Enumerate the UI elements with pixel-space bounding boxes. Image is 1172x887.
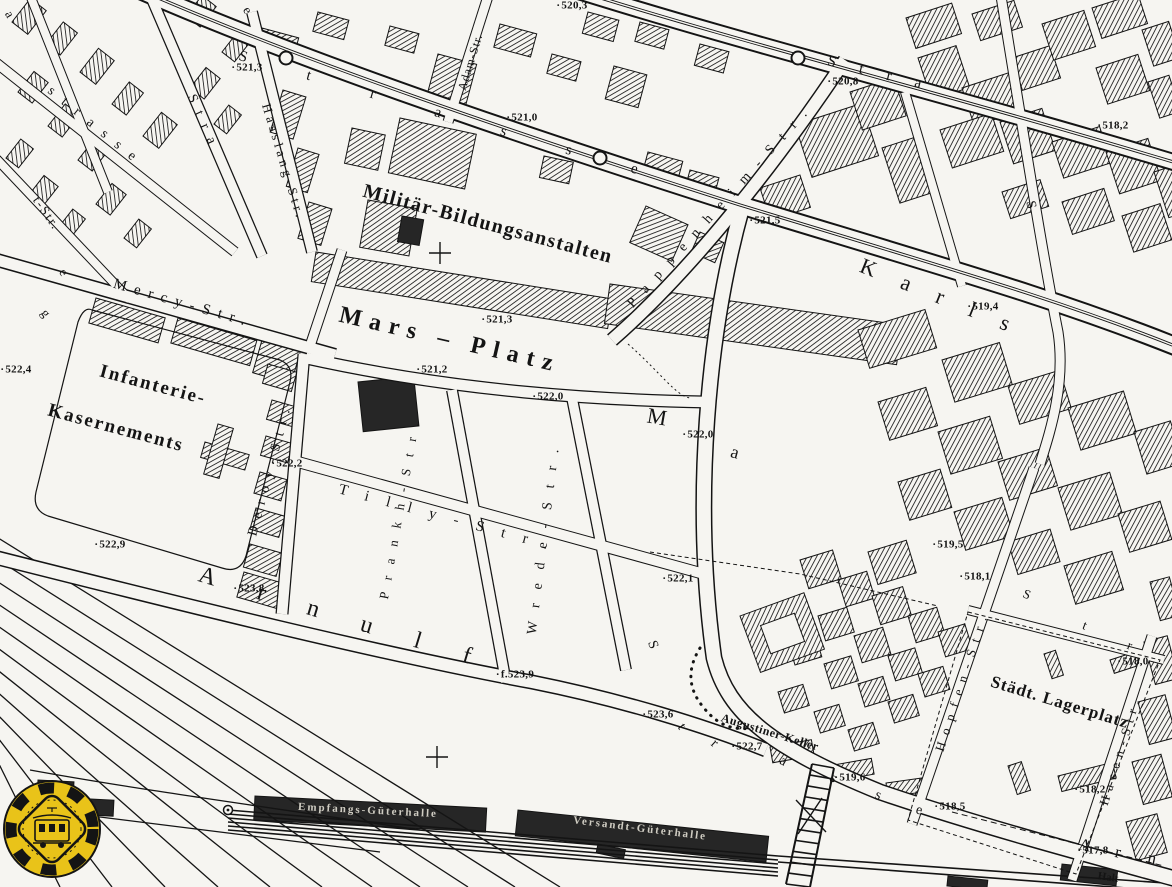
label-kasernements: Kasernements	[46, 401, 186, 456]
street-label-strasse-left: strasse	[44, 84, 147, 171]
street-label-karls: Karls	[857, 255, 1039, 346]
street-label-adam-str: Adam-Str.	[456, 32, 485, 92]
elevation-marker: f.523,9	[496, 670, 534, 681]
elevation-marker: 522,2	[271, 459, 302, 470]
street-letter: e	[914, 803, 924, 818]
label-empfangs-gueterhalle: Empfangs-Güterhalle	[298, 802, 438, 820]
label-versandt-gueterhalle: Versandt-Güterhalle	[572, 815, 707, 842]
elevation-marker: 519,4	[967, 302, 998, 313]
street-letter: s	[873, 788, 883, 803]
elevation-marker: 522,7	[731, 742, 762, 753]
street-letter: a	[3, 8, 17, 20]
label-infanterie: Infanterie-	[98, 362, 209, 409]
elevation-marker: 522,1	[662, 574, 693, 585]
street-letter: r	[708, 737, 721, 751]
street-letter: r	[1126, 638, 1135, 652]
elevation-marker: 520,8	[827, 77, 858, 88]
street-letter: n	[1146, 849, 1158, 867]
elevation-marker: 518,0	[1117, 657, 1148, 668]
street-letter: t	[674, 721, 688, 732]
elevation-marker: 522,4	[0, 365, 31, 376]
street-label-mercy-str: Mercy-Str.	[111, 277, 254, 331]
street-letter: S	[1021, 587, 1033, 602]
elevation-marker: 521,3	[231, 63, 262, 74]
map-labels-layer: Militär-BildungsanstaltenMars – PlatzInf…	[0, 0, 1172, 887]
street-label-pappenheim-str: Pappenheim-Str.	[625, 99, 818, 311]
street-label-t-str-partial: t-Str.	[31, 194, 63, 232]
street-label-hasslang-str: Hasslang-Str.	[260, 102, 308, 222]
label-mars-platz: Mars – Platz	[337, 303, 563, 377]
street-letter: r	[1113, 843, 1122, 861]
street-label-stra-left2: Stra	[184, 93, 222, 156]
street-letter: S	[644, 639, 660, 651]
street-letter: g	[39, 307, 53, 320]
map-canvas[interactable]: Militär-BildungsanstaltenMars – PlatzInf…	[0, 0, 1172, 887]
elevation-marker: 519,6	[834, 773, 865, 784]
elevation-marker: 520,3	[556, 1, 587, 12]
elevation-marker: 523,6	[642, 710, 673, 721]
elevation-marker: 521,2	[416, 365, 447, 376]
street-letter: t	[1081, 618, 1089, 631]
label-halt: Halt	[1097, 871, 1119, 885]
street-letter: S	[1022, 200, 1037, 211]
elevation-marker: 519,5	[932, 540, 963, 551]
street-label-arnulf: Arnulf	[196, 563, 517, 682]
elevation-marker: 523,8	[233, 584, 264, 595]
street-letter: e	[57, 266, 71, 278]
elevation-marker: 521,5	[749, 216, 780, 227]
street-letter: M	[645, 404, 668, 429]
street-letter: a	[729, 442, 741, 461]
elevation-marker: 522,0	[532, 392, 563, 403]
elevation-marker: 521,3	[481, 315, 512, 326]
street-label-tilly-str: Tilly-Str.	[337, 482, 567, 557]
elevation-marker: 522,0	[682, 430, 713, 441]
street-letter: e	[241, 4, 255, 16]
elevation-marker: 518,1	[959, 572, 990, 583]
elevation-marker: 522,9	[94, 540, 125, 551]
elevation-marker: 521,0	[506, 113, 537, 124]
label-staedt-lagerplatz: Städt. Lagerplatz	[989, 673, 1131, 731]
elevation-marker: 518,5	[934, 802, 965, 813]
elevation-marker: 518,2	[1097, 121, 1128, 132]
elevation-marker: 517,8	[1077, 846, 1108, 857]
label-militaer-bildungsanstalten: Militär-Bildungsanstalten	[361, 181, 615, 267]
street-letter: a	[777, 754, 789, 769]
street-label-hopfen-str: Hopfen-Str.	[933, 607, 991, 753]
elevation-marker: 518,2	[1074, 785, 1105, 796]
